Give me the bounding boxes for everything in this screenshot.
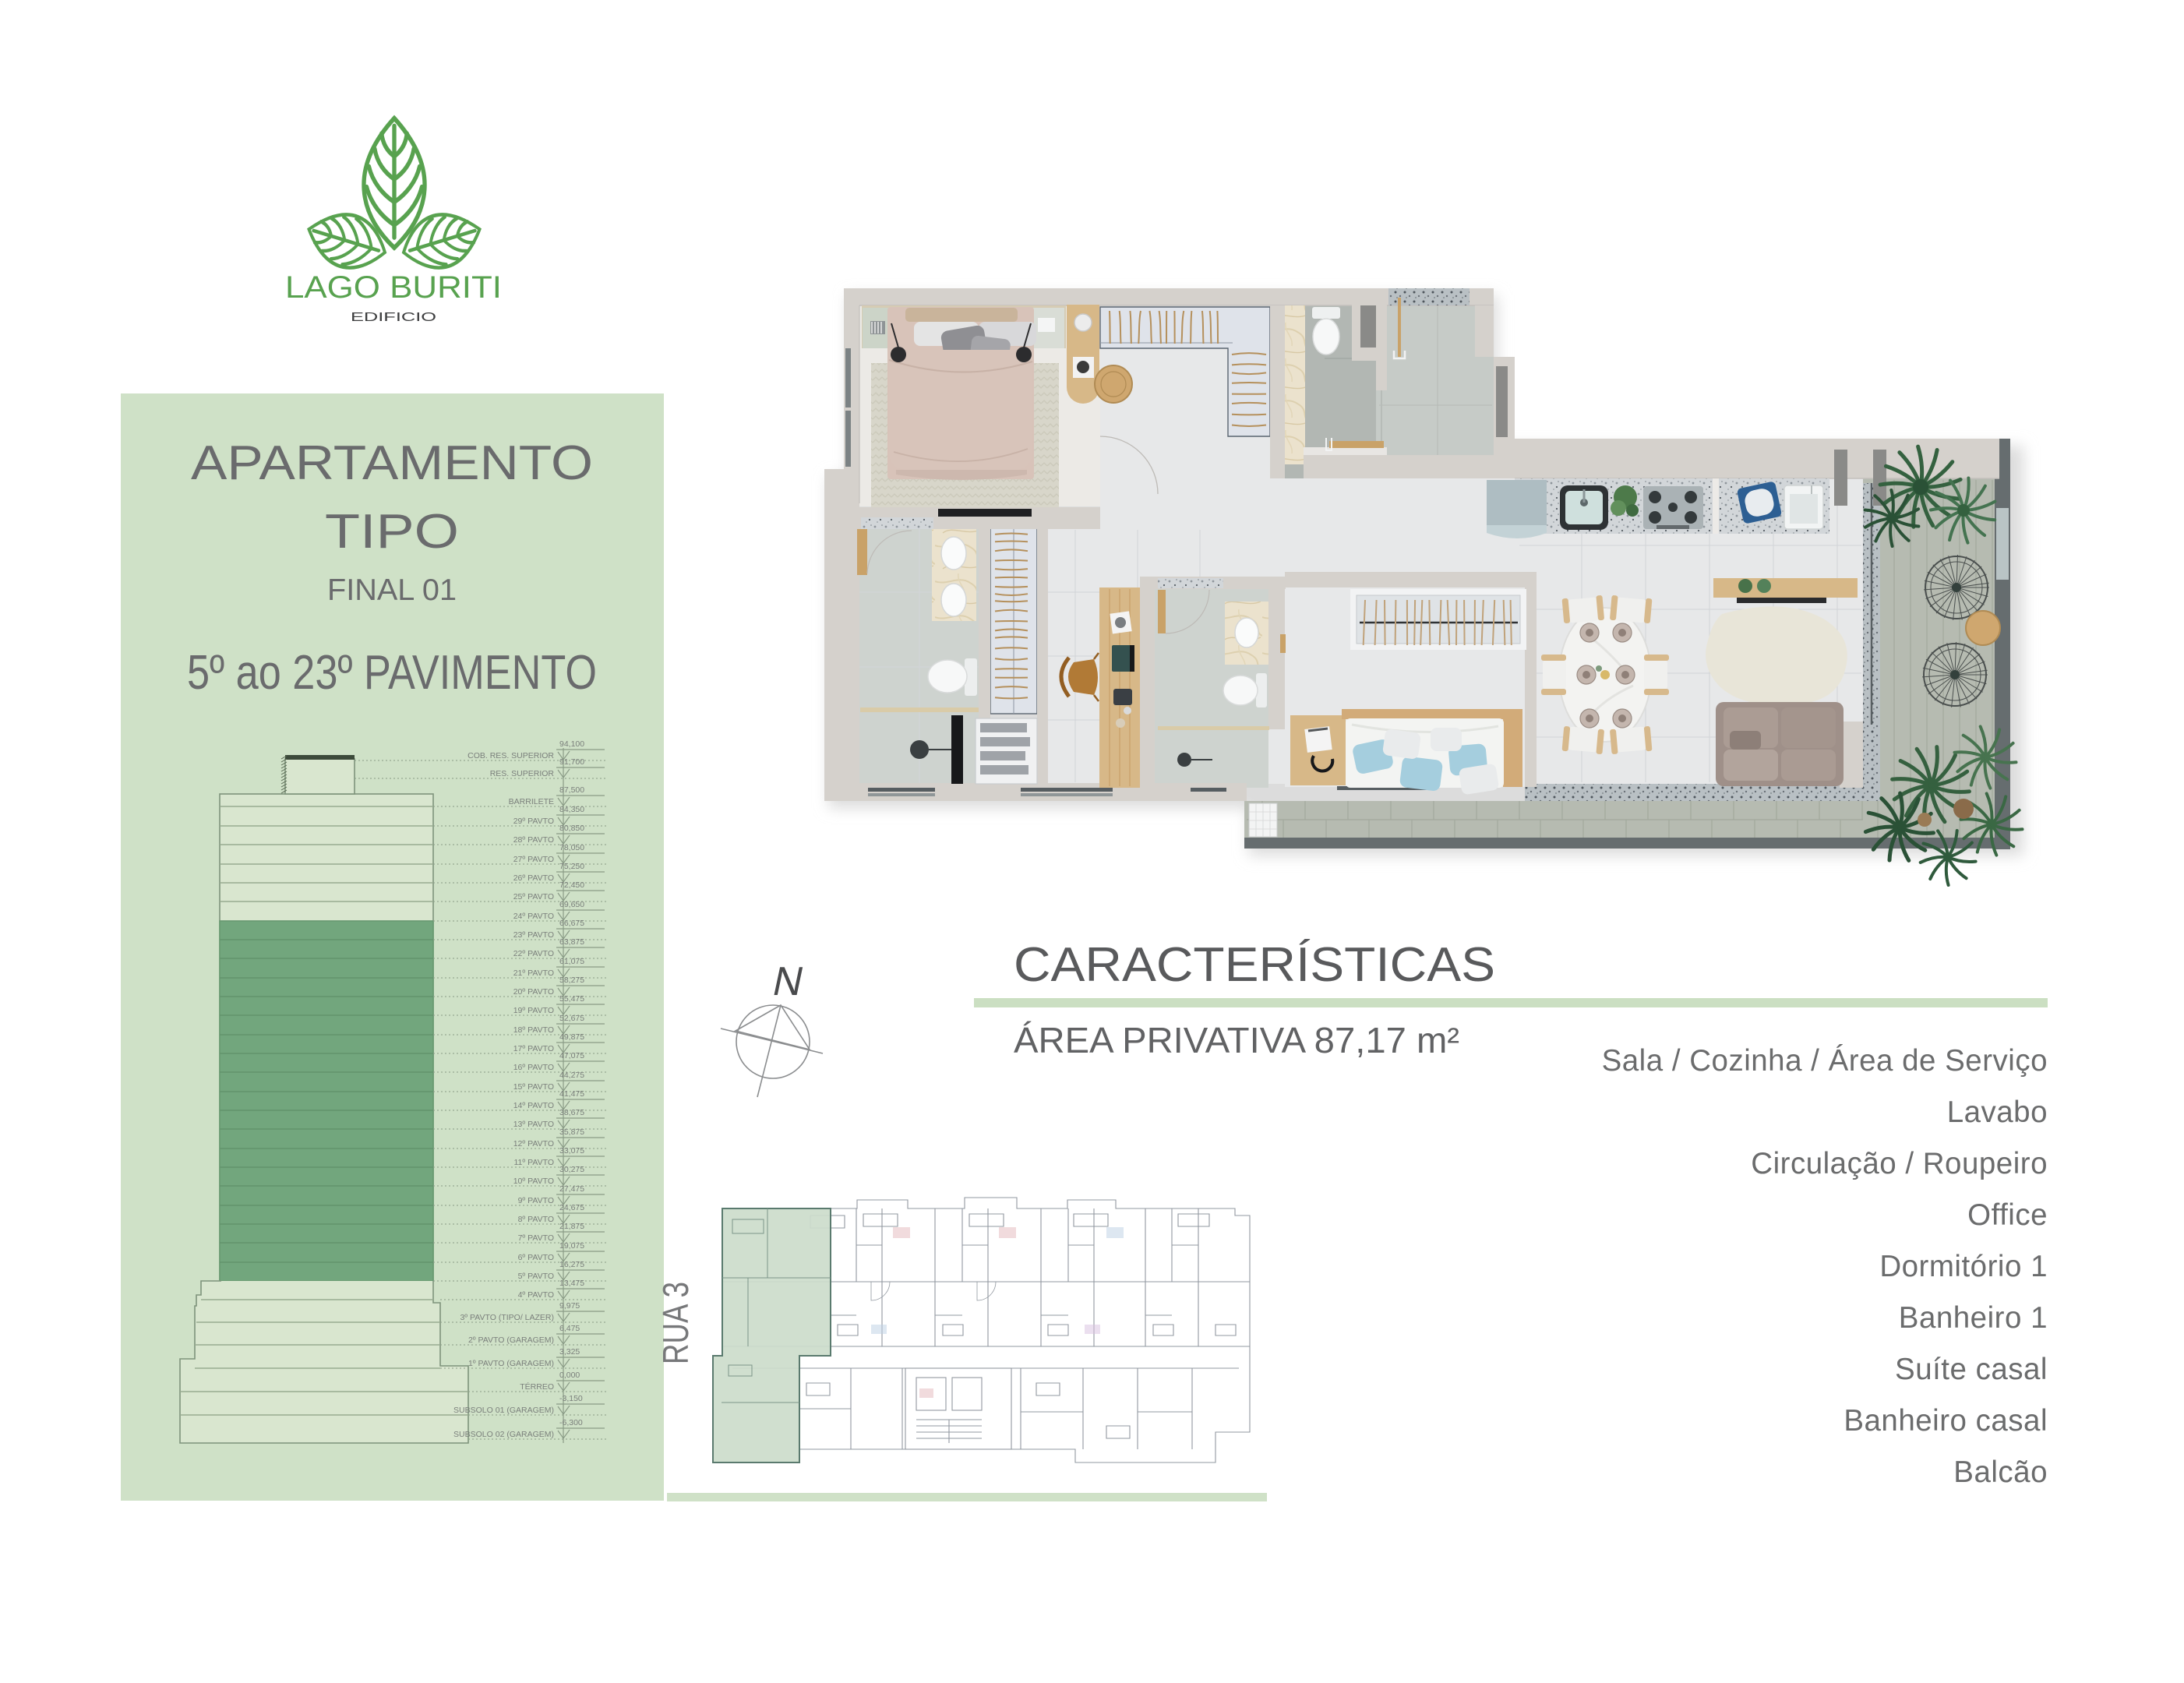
svg-text:19º PAVTO: 19º PAVTO	[513, 1006, 554, 1015]
svg-text:0,000: 0,000	[559, 1371, 580, 1380]
svg-text:FINAL 01: FINAL 01	[327, 573, 457, 607]
svg-text:21º PAVTO: 21º PAVTO	[513, 969, 554, 978]
svg-text:69,650: 69,650	[559, 900, 584, 909]
svg-text:BARRILETE: BARRILETE	[509, 797, 554, 806]
svg-text:87,500: 87,500	[559, 785, 584, 795]
svg-text:63,875: 63,875	[559, 937, 584, 947]
svg-text:72,450: 72,450	[559, 880, 584, 890]
svg-text:21,875: 21,875	[559, 1222, 584, 1231]
svg-text:28º PAVTO: 28º PAVTO	[513, 835, 554, 845]
svg-text:52,675: 52,675	[559, 1014, 584, 1023]
svg-text:Sala / Cozinha / Área de Servi: Sala / Cozinha / Área de Serviço	[1602, 1044, 2048, 1078]
svg-text:33,075: 33,075	[559, 1146, 584, 1156]
svg-text:11º PAVTO: 11º PAVTO	[514, 1158, 555, 1167]
svg-text:SUBSOLO 02 (GARAGEM): SUBSOLO 02 (GARAGEM)	[453, 1430, 554, 1439]
svg-text:25º PAVTO: 25º PAVTO	[513, 892, 554, 901]
svg-text:5º ao 23º PAVIMENTO: 5º ao 23º PAVIMENTO	[187, 646, 597, 700]
svg-text:13º PAVTO: 13º PAVTO	[513, 1120, 554, 1129]
svg-text:RUA 3: RUA 3	[655, 1282, 696, 1364]
svg-text:-6,300: -6,300	[559, 1418, 583, 1427]
svg-text:23º PAVTO: 23º PAVTO	[513, 930, 554, 940]
svg-text:55,475: 55,475	[559, 994, 584, 1004]
svg-text:-3,150: -3,150	[559, 1394, 583, 1403]
svg-text:Office: Office	[1967, 1198, 2048, 1232]
svg-text:38,675: 38,675	[559, 1108, 584, 1117]
svg-text:TIPO: TIPO	[325, 505, 459, 559]
svg-text:9,975: 9,975	[559, 1301, 580, 1311]
svg-text:CARACTERÍSTICAS: CARACTERÍSTICAS	[1014, 938, 1495, 992]
svg-text:ÁREA PRIVATIVA 87,17 m²: ÁREA PRIVATIVA 87,17 m²	[1014, 1020, 1459, 1060]
svg-text:Banheiro casal: Banheiro casal	[1844, 1404, 2048, 1438]
svg-text:Lavabo: Lavabo	[1947, 1096, 2048, 1129]
svg-text:26º PAVTO: 26º PAVTO	[513, 873, 554, 883]
svg-text:9º PAVTO: 9º PAVTO	[518, 1196, 554, 1205]
svg-text:APARTAMENTO: APARTAMENTO	[191, 436, 593, 490]
svg-text:61,075: 61,075	[559, 957, 584, 966]
svg-text:4º PAVTO: 4º PAVTO	[518, 1290, 554, 1300]
svg-text:18º PAVTO: 18º PAVTO	[513, 1025, 554, 1035]
svg-text:COB. RES. SUPERIOR: COB. RES. SUPERIOR	[467, 751, 554, 760]
svg-text:Dormitório 1: Dormitório 1	[1879, 1250, 2048, 1283]
svg-text:TÉRREO: TÉRREO	[520, 1381, 554, 1392]
svg-text:16º PAVTO: 16º PAVTO	[513, 1063, 554, 1072]
svg-text:Balcão: Balcão	[1953, 1455, 2048, 1489]
svg-text:3º PAVTO (TIPO/ LAZER): 3º PAVTO (TIPO/ LAZER)	[460, 1313, 554, 1322]
svg-text:6º PAVTO: 6º PAVTO	[518, 1253, 554, 1262]
svg-text:5º PAVTO: 5º PAVTO	[518, 1272, 554, 1281]
svg-text:44,275: 44,275	[559, 1071, 584, 1080]
svg-text:17º PAVTO: 17º PAVTO	[513, 1044, 554, 1053]
svg-text:RES. SUPERIOR: RES. SUPERIOR	[490, 769, 555, 778]
svg-text:30,275: 30,275	[559, 1165, 584, 1174]
svg-text:Suíte casal: Suíte casal	[1895, 1353, 2048, 1386]
svg-text:22º PAVTO: 22º PAVTO	[513, 949, 554, 958]
svg-text:80,850: 80,850	[559, 824, 584, 833]
svg-text:27,475: 27,475	[559, 1184, 584, 1194]
svg-text:12º PAVTO: 12º PAVTO	[513, 1139, 554, 1148]
svg-text:7º PAVTO: 7º PAVTO	[518, 1233, 554, 1243]
svg-text:47,075: 47,075	[559, 1051, 584, 1060]
svg-text:27º PAVTO: 27º PAVTO	[513, 855, 554, 864]
svg-text:58,275: 58,275	[559, 976, 584, 985]
svg-text:Banheiro 1: Banheiro 1	[1899, 1301, 2048, 1335]
svg-text:84,350: 84,350	[559, 805, 584, 814]
svg-text:49,875: 49,875	[559, 1032, 584, 1042]
svg-text:91,700: 91,700	[559, 757, 584, 767]
svg-text:78,050: 78,050	[559, 843, 584, 852]
svg-text:20º PAVTO: 20º PAVTO	[513, 987, 554, 997]
svg-text:15º PAVTO: 15º PAVTO	[513, 1082, 554, 1092]
svg-text:75,250: 75,250	[559, 862, 584, 871]
svg-text:16,275: 16,275	[559, 1260, 584, 1269]
svg-text:19,075: 19,075	[559, 1241, 584, 1251]
svg-text:24º PAVTO: 24º PAVTO	[513, 912, 554, 921]
svg-text:Circulação / Roupeiro: Circulação / Roupeiro	[1751, 1147, 2048, 1180]
svg-text:66,675: 66,675	[559, 919, 584, 928]
svg-text:LAGO BURITI: LAGO BURITI	[285, 270, 502, 305]
svg-text:94,100: 94,100	[559, 739, 584, 749]
svg-text:14º PAVTO: 14º PAVTO	[513, 1101, 554, 1110]
svg-text:24,675: 24,675	[559, 1203, 584, 1212]
svg-text:2º PAVTO (GARAGEM): 2º PAVTO (GARAGEM)	[468, 1335, 554, 1345]
svg-text:EDIFICIO: EDIFICIO	[351, 311, 436, 324]
svg-text:10º PAVTO: 10º PAVTO	[513, 1177, 554, 1186]
svg-text:SUBSOLO 01 (GARAGEM): SUBSOLO 01 (GARAGEM)	[453, 1406, 554, 1415]
svg-text:35,875: 35,875	[559, 1127, 584, 1137]
svg-text:1º PAVTO (GARAGEM): 1º PAVTO (GARAGEM)	[468, 1359, 554, 1368]
svg-text:41,475: 41,475	[559, 1089, 584, 1099]
svg-text:13,475: 13,475	[559, 1279, 584, 1288]
svg-text:3,325: 3,325	[559, 1347, 580, 1357]
svg-text:6,475: 6,475	[559, 1324, 580, 1333]
svg-text:8º PAVTO: 8º PAVTO	[518, 1215, 554, 1224]
svg-text:29º PAVTO: 29º PAVTO	[513, 817, 554, 826]
